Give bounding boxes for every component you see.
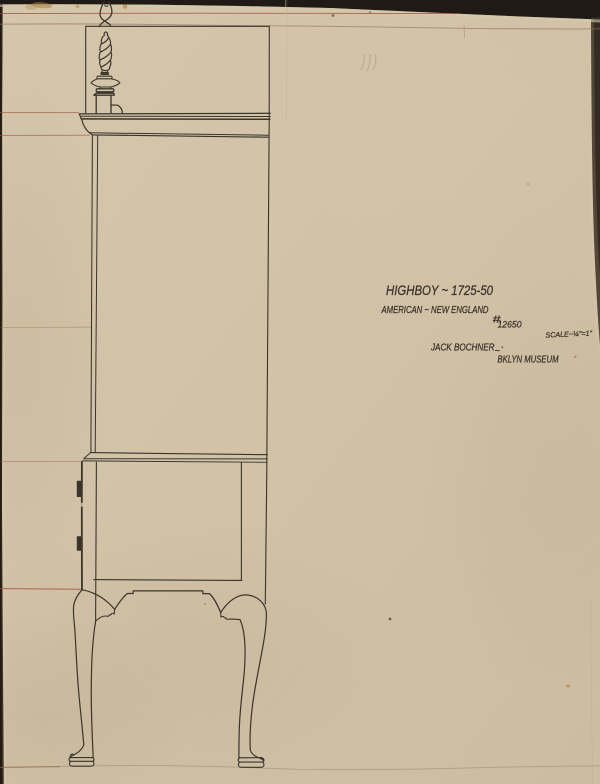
svg-text:AMERICAN ~ NEW ENGLAND: AMERICAN ~ NEW ENGLAND	[381, 305, 489, 316]
svg-text:12650: 12650	[498, 319, 522, 329]
svg-text:BKLYN MUSEUM: BKLYN MUSEUM	[498, 354, 560, 365]
svg-text:JACK BOCHNER: JACK BOCHNER	[430, 342, 494, 353]
svg-text:HIGHBOY ~ 1725-50: HIGHBOY ~ 1725-50	[386, 282, 493, 298]
